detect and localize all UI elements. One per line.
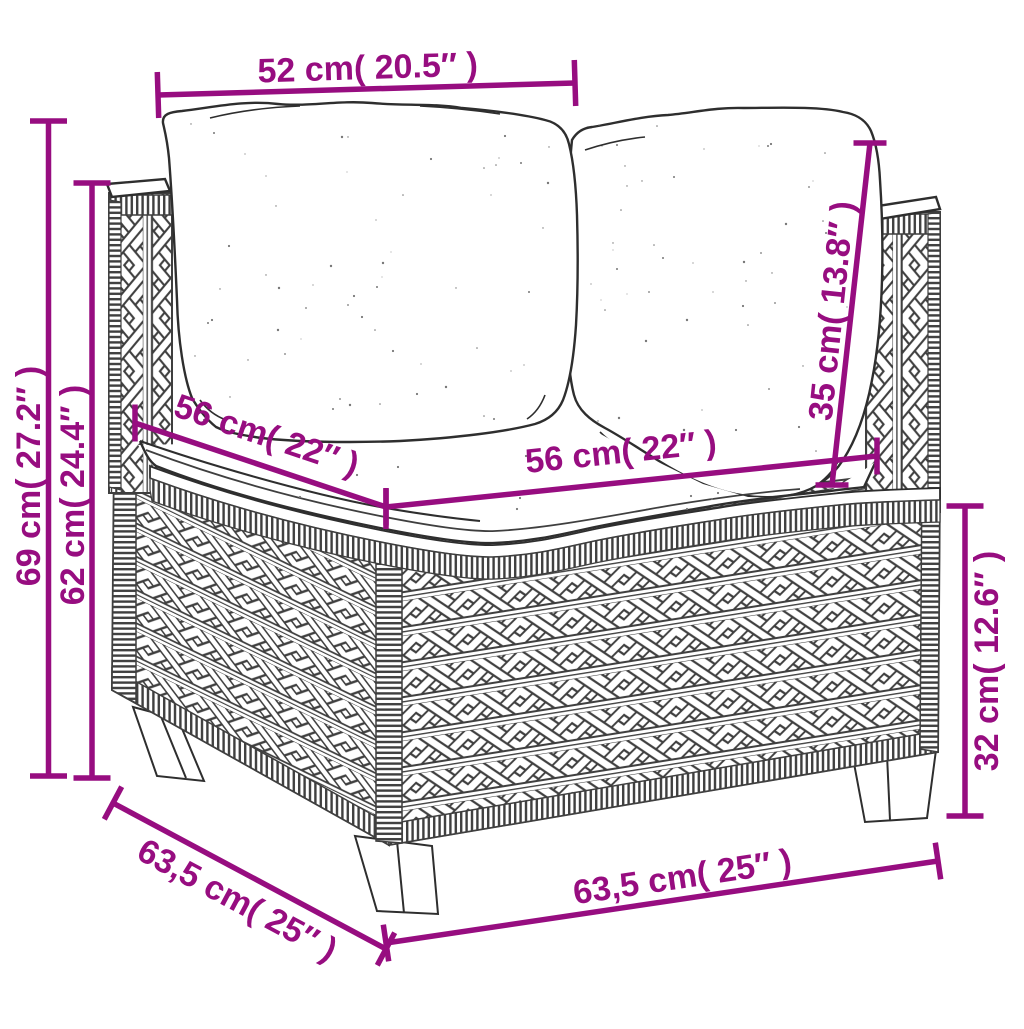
svg-text:52 cm( 20.5″ ): 52 cm( 20.5″ ) [257, 46, 478, 91]
svg-text:69 cm( 27.2″ ): 69 cm( 27.2″ ) [10, 366, 48, 586]
svg-text:32 cm( 12.6″ ): 32 cm( 12.6″ ) [968, 551, 1006, 771]
svg-text:62 cm( 24.4″ ): 62 cm( 24.4″ ) [54, 385, 92, 605]
